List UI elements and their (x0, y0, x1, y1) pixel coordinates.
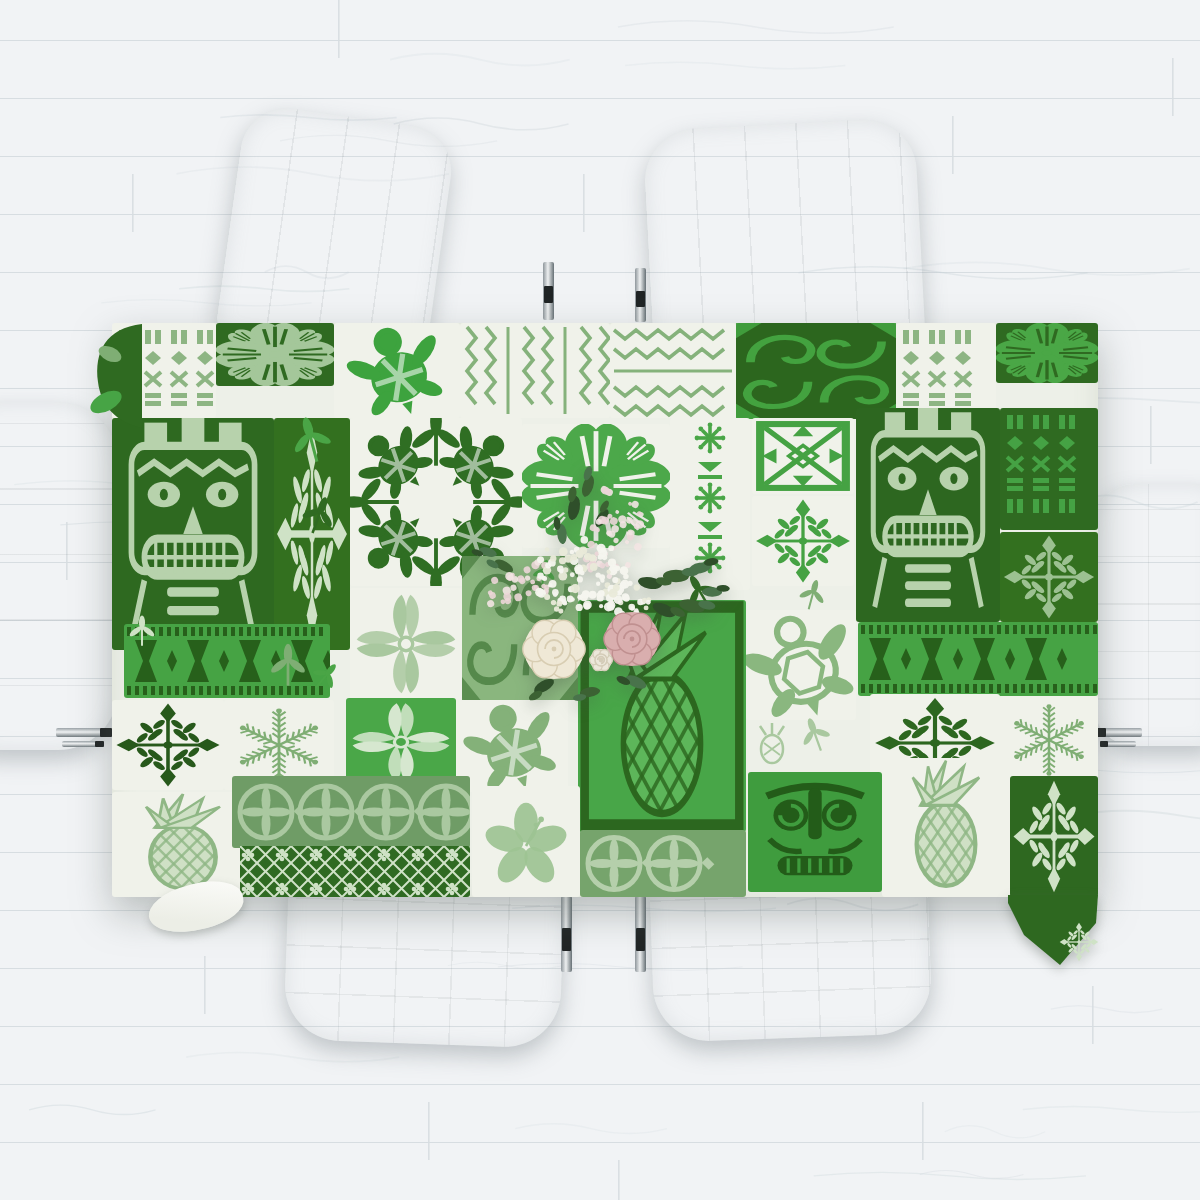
flower-bouquet (450, 450, 750, 720)
foliage-leaf (688, 557, 720, 575)
grain-stroke (186, 1053, 399, 1062)
chrome-leg (543, 262, 554, 320)
foliage-leaf (525, 676, 558, 702)
tapa-x-tile (752, 418, 854, 494)
foliage-leaf (702, 584, 730, 597)
tiki-mask-tile (748, 772, 882, 892)
monstera-quilt-tile (216, 323, 334, 386)
chrome-leg (1096, 728, 1142, 737)
hourglass-tile (858, 622, 1098, 696)
grain-stroke (390, 54, 569, 66)
tiki-face-tile (112, 418, 274, 650)
foliage-leaf (471, 543, 498, 561)
turtle-tile (334, 323, 460, 418)
plank-joint (1172, 58, 1174, 116)
tiki-columns-tile (896, 323, 996, 418)
quilt-snowflake-tile (274, 418, 350, 650)
chrome-leg (561, 896, 572, 972)
quilt-snowflake-tile (752, 496, 854, 586)
leaf-cross-tile (346, 698, 456, 786)
zigzag-v-tile (460, 323, 610, 418)
quilt-snowflake-tile (112, 700, 224, 790)
plank-joint (132, 174, 134, 232)
monstera-quilt-tile (996, 323, 1098, 383)
chrome-leg (62, 741, 104, 747)
quilt-snowflake-tile (1010, 776, 1098, 897)
hourglass-tile (124, 624, 330, 698)
cloth-corner-leaf-drape (76, 318, 146, 448)
foliage-leaf (553, 516, 567, 545)
tiki-columns-tile (1000, 408, 1098, 530)
grain-stroke (29, 1105, 155, 1114)
foliage-leaf (564, 486, 583, 521)
chair-left-end (0, 402, 118, 750)
cream-rose (523, 619, 585, 679)
lattice-tile (240, 846, 470, 897)
grain-stroke (1051, 1006, 1162, 1013)
white-rosebud (590, 649, 613, 671)
chrome-leg (56, 728, 112, 737)
leg-rubber-tip (544, 286, 553, 303)
hibiscus-tile (472, 786, 580, 897)
leg-rubber-tip (1100, 741, 1108, 747)
plank-joint (1092, 986, 1094, 1044)
plank-joint (204, 956, 206, 1014)
chrome-leg (635, 268, 646, 322)
leaf-cross-tile (350, 588, 462, 700)
leg-rubber-tip (636, 291, 645, 307)
leg-rubber-tip (95, 741, 104, 747)
foliage-leaf (615, 669, 648, 694)
grain-stroke (618, 21, 894, 33)
plank-joint (1150, 406, 1152, 464)
foliage-leaf (572, 686, 601, 702)
chair-bottom-right (649, 873, 932, 1043)
zigzag-h-tile (610, 323, 736, 418)
medallion-band-tile (580, 830, 746, 897)
tapa-swirl-tile (736, 323, 896, 419)
pineapple-tile (882, 758, 1010, 897)
tiki-face-tile (856, 408, 1000, 622)
grain-stroke (515, 1124, 667, 1134)
chair-bottom-left (283, 873, 565, 1049)
cloth-drape-bottom-right (992, 883, 1112, 983)
grain-stroke (945, 1126, 1045, 1138)
grain-stroke (625, 62, 845, 68)
plank-joint (338, 0, 340, 58)
medallion-band-tile (232, 776, 470, 848)
scene (0, 0, 1200, 1200)
chrome-leg (1100, 741, 1136, 747)
chair-right-end (1094, 484, 1200, 746)
plank-joint (952, 116, 954, 174)
foliage-leaf (577, 465, 599, 498)
grain-stroke (1023, 1107, 1200, 1113)
foliage-leaf (590, 499, 615, 529)
chair-top-right (642, 117, 925, 355)
plank-joint (922, 1102, 924, 1160)
turtle-outline-tile (746, 610, 856, 720)
quilt-snowflake-tile (1000, 532, 1098, 622)
leg-rubber-tip (562, 928, 571, 951)
chrome-leg (635, 896, 646, 972)
plank-joint (428, 1102, 430, 1160)
plank-joint (618, 1160, 620, 1200)
grain-stroke (814, 1172, 1086, 1179)
leg-rubber-tip (100, 728, 112, 737)
leg-rubber-tip (636, 928, 645, 951)
fern-snowflake-tile (1000, 696, 1098, 784)
plank-joint (583, 174, 585, 232)
